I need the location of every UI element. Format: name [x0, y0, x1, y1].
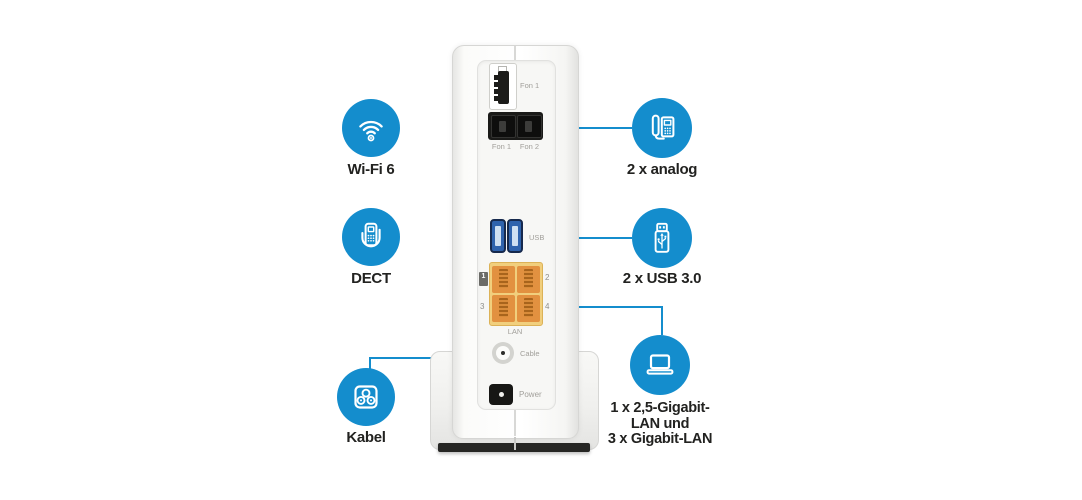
- cable-socket-icon: [346, 377, 386, 417]
- laptop-icon: [640, 345, 680, 385]
- wifi-bubble: [342, 99, 400, 157]
- usb-bubble: [632, 208, 692, 268]
- wifi-label: Wi-Fi 6: [301, 161, 441, 178]
- lan-port2-number: 2: [545, 273, 549, 282]
- dect-label: DECT: [301, 270, 441, 287]
- lan-port3-number: 3: [480, 302, 484, 311]
- lan-port-1: [492, 266, 515, 293]
- usb-stick-icon: [642, 218, 682, 258]
- router-top-seam: [514, 46, 516, 60]
- usb-label: 2 x USB 3.0: [582, 270, 742, 287]
- lan-port-3: [492, 295, 515, 322]
- lan-gigabit-label: 1 x 2,5-Gigabit- LAN und 3 x Gigabit-LAN: [570, 401, 750, 448]
- cable-port-label: Cable: [520, 349, 540, 358]
- analog-label: 2 x analog: [582, 161, 742, 178]
- line-lan-vertical: [661, 306, 663, 335]
- lan-label-line2: LAN und: [570, 417, 750, 433]
- power-jack: [489, 384, 513, 405]
- lan-bubble: [630, 335, 690, 395]
- cable-coax-connector: [492, 342, 514, 364]
- kabel-bubble: [337, 368, 395, 426]
- fon1-port: [491, 115, 516, 138]
- tae-socket: [489, 63, 517, 110]
- tae-connector-icon: [490, 64, 516, 109]
- fon1-port-label: Fon 1: [488, 142, 515, 151]
- cable-connector-pin: [501, 351, 505, 355]
- usb-port-2: [507, 219, 523, 253]
- lan-port4-number: 4: [545, 302, 549, 311]
- power-port-label: Power: [519, 390, 542, 399]
- power-jack-pin: [499, 392, 504, 397]
- lan-port-4: [517, 295, 540, 322]
- lan-block-label: LAN: [500, 327, 530, 336]
- tae-port-label: Fon 1: [520, 81, 539, 90]
- stand-seam: [514, 437, 516, 450]
- lan-label-line1: 1 x 2,5-Gigabit-: [570, 401, 750, 417]
- analog-phone-icon: [642, 108, 682, 148]
- lan-port1-badge: 1: [479, 272, 488, 286]
- usb-port-label: USB: [529, 233, 544, 242]
- analog-bubble: [632, 98, 692, 158]
- line-analog: [577, 127, 632, 129]
- lan-label-line3: 3 x Gigabit-LAN: [570, 432, 750, 448]
- router-bottom-seam: [514, 408, 516, 436]
- line-kabel-vertical: [369, 357, 371, 369]
- usb-port-1: [490, 219, 506, 253]
- line-lan-horizontal: [577, 306, 663, 308]
- fon-rj11-ports: [488, 112, 543, 140]
- lan-port-block: [489, 262, 543, 326]
- fon2-port: [517, 115, 542, 138]
- dect-bubble: [342, 208, 400, 266]
- wifi-icon: [351, 108, 391, 148]
- line-usb: [577, 237, 632, 239]
- lan-port-2: [517, 266, 540, 293]
- kabel-label: Kabel: [296, 429, 436, 446]
- fon2-port-label: Fon 2: [516, 142, 543, 151]
- router-ports-callout-diagram: Wi-Fi 6 DECT Kab: [0, 0, 1082, 500]
- dect-phone-icon: [351, 217, 391, 257]
